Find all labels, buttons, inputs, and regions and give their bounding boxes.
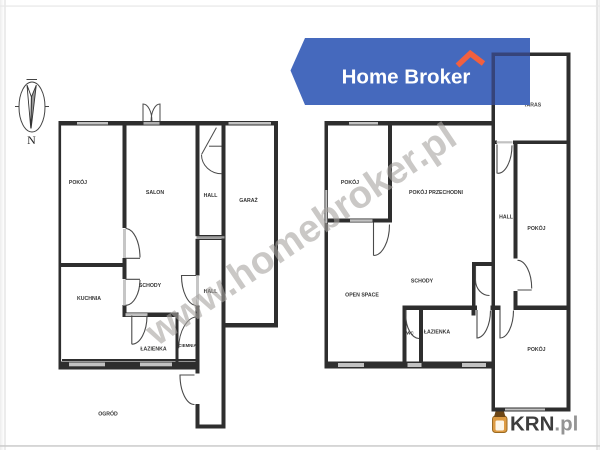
svg-text:POKÓJ: POKÓJ [69, 178, 87, 186]
svg-text:POKÓJ PRZECHODNI: POKÓJ PRZECHODNI [409, 188, 463, 196]
svg-text:KRN.pl: KRN.pl [510, 413, 578, 436]
svg-text:OPEN SPACE: OPEN SPACE [345, 293, 379, 299]
svg-text:SALON: SALON [146, 190, 164, 196]
svg-text:HALL: HALL [204, 193, 219, 199]
svg-text:SCHODY: SCHODY [139, 283, 162, 289]
svg-text:SCHODY: SCHODY [411, 279, 434, 285]
svg-text:CIEMNIA: CIEMNIA [178, 343, 196, 348]
svg-text:KUCHNIA: KUCHNIA [77, 296, 101, 302]
svg-text:ŁAZIENKA: ŁAZIENKA [424, 330, 450, 336]
svg-text:N: N [27, 133, 36, 147]
svg-text:POKÓJ: POKÓJ [527, 345, 545, 353]
svg-text:HALL: HALL [499, 215, 514, 221]
svg-text:GARAŻ: GARAŻ [239, 197, 258, 204]
svg-text:OGRÓD: OGRÓD [98, 410, 118, 418]
svg-text:WC: WC [406, 331, 414, 336]
svg-text:Home Broker: Home Broker [342, 66, 471, 89]
svg-text:POKÓJ: POKÓJ [527, 224, 545, 232]
